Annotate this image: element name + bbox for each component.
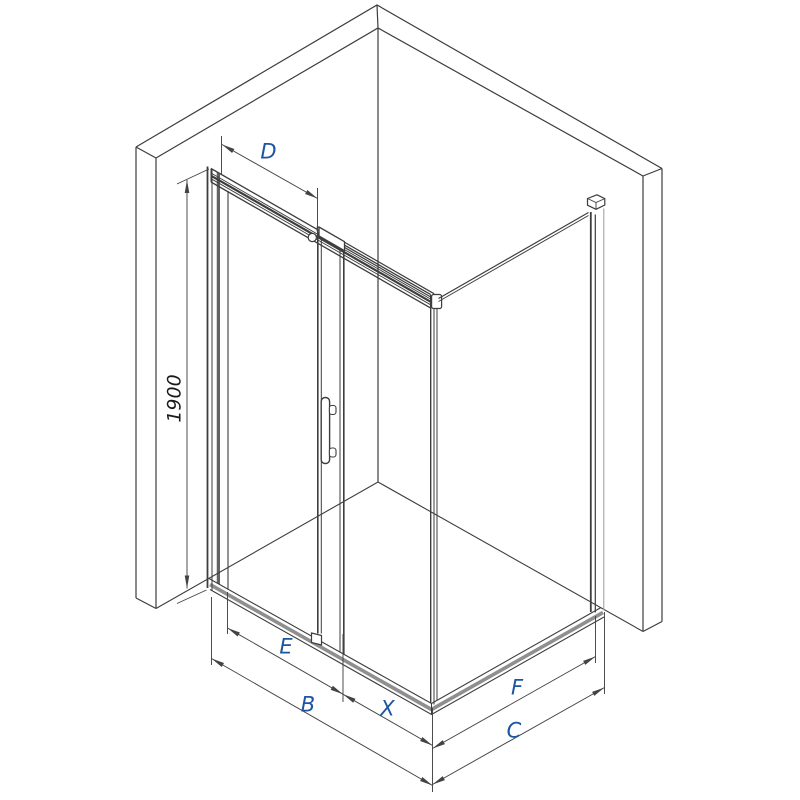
tray-lip-top-edge xyxy=(209,579,601,704)
ext-height-bottom xyxy=(177,590,207,604)
arrow-f-left xyxy=(433,740,445,748)
arrow-d-left xyxy=(222,145,234,154)
shower-tray xyxy=(209,579,604,715)
walls xyxy=(136,5,662,632)
dimline-b xyxy=(212,659,433,786)
side-panel xyxy=(439,195,605,613)
door-handle-mount-bottom xyxy=(329,448,336,457)
side-glass-top-edge-b xyxy=(439,216,589,302)
dim-label-door-width: D xyxy=(260,140,276,164)
junction-top-bracket xyxy=(432,295,442,309)
tray-thick-edge xyxy=(210,585,603,710)
door-bottom-guide xyxy=(312,633,322,645)
side-glass-top-edge-a xyxy=(439,213,589,299)
left-wall-end-bottom xyxy=(136,598,156,609)
door-handle-mount-top xyxy=(329,406,336,415)
arrow-x-right xyxy=(420,737,432,746)
wall-top-outer-edge xyxy=(136,5,662,169)
ext-height-top xyxy=(177,169,209,184)
floor-edges xyxy=(156,482,643,632)
wall-top-inner-edge xyxy=(156,28,643,176)
arrow-x-left xyxy=(343,694,356,703)
arrow-f-right xyxy=(583,657,595,665)
arrow-b-right xyxy=(420,777,432,786)
dim-label-height-1900: 1900 xyxy=(164,374,186,422)
wall-apex-edge xyxy=(377,5,378,28)
right-wall-end-bottom xyxy=(643,622,662,632)
diagram-canvas: D 1900 E B X F C xyxy=(0,0,800,800)
sliding-door xyxy=(308,227,434,646)
shower-enclosure-technical-drawing: D 1900 E B X F C xyxy=(0,0,800,800)
dim-label-b: B xyxy=(301,693,315,717)
dim-label-x: X xyxy=(379,697,395,721)
roller-bracket xyxy=(319,227,345,251)
door-handle-bar xyxy=(321,398,329,464)
arrow-e-left xyxy=(228,628,240,637)
arrow-c-left xyxy=(433,776,445,784)
arrow-e-right xyxy=(331,686,343,695)
arrow-height-top xyxy=(185,180,190,193)
dim-label-c: C xyxy=(507,719,522,743)
right-wall-end-top xyxy=(643,169,662,177)
arrow-d-right xyxy=(305,190,317,199)
arrow-height-bottom xyxy=(185,576,190,589)
arrow-b-left xyxy=(212,659,225,668)
corner-junction-profile xyxy=(431,295,442,705)
dimensions xyxy=(177,136,605,792)
dim-label-f: F xyxy=(511,676,524,700)
roller-wheel xyxy=(308,233,316,241)
dim-label-e: E xyxy=(279,635,293,659)
arrow-c-right xyxy=(592,688,604,696)
left-wall-end-top xyxy=(136,147,156,158)
